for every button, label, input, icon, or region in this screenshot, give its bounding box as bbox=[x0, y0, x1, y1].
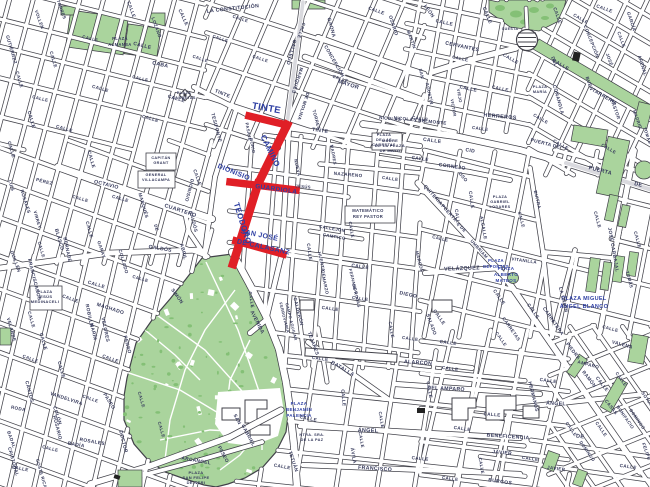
svg-text:NTRA. SRA.: NTRA. SRA. bbox=[299, 433, 324, 437]
svg-text:DE MAYO: DE MAYO bbox=[380, 148, 401, 153]
svg-text:ALMANSA: ALMANSA bbox=[108, 42, 131, 47]
svg-text:ÁNGEL: ÁNGEL bbox=[546, 400, 567, 408]
svg-text:MATEOS: MATEOS bbox=[495, 278, 516, 283]
svg-text:DE LA PAZ: DE LA PAZ bbox=[301, 438, 324, 442]
svg-text:BENJAMÍN: BENJAMÍN bbox=[286, 405, 312, 412]
svg-text:GRANT: GRANT bbox=[153, 161, 169, 165]
svg-text:REY PASTOR: REY PASTOR bbox=[353, 214, 383, 219]
svg-text:PLAZA: PLAZA bbox=[112, 36, 128, 41]
svg-text:MEDINACELI: MEDINACELI bbox=[31, 299, 59, 304]
svg-text:VILLACAMPA: VILLACAMPA bbox=[142, 178, 170, 182]
svg-text:PLAZA: PLAZA bbox=[177, 91, 191, 95]
svg-text:CUESTA: CUESTA bbox=[502, 27, 519, 31]
svg-text:PLAZA: PLAZA bbox=[533, 85, 547, 89]
svg-text:DEPORTES: DEPORTES bbox=[483, 264, 509, 269]
svg-text:PLAZA: PLAZA bbox=[493, 195, 507, 199]
svg-text:ALBERTO: ALBERTO bbox=[494, 272, 518, 277]
svg-text:DE LAS: DE LAS bbox=[376, 138, 392, 142]
svg-text:VELÁZQUEZ: VELÁZQUEZ bbox=[444, 264, 480, 272]
svg-text:CARRETAS: CARRETAS bbox=[372, 143, 396, 147]
svg-text:LODARES: LODARES bbox=[489, 205, 510, 209]
svg-text:DE NERI: DE NERI bbox=[187, 480, 206, 485]
svg-text:CAPITÁN: CAPITÁN bbox=[151, 155, 170, 160]
svg-text:GENERAL: GENERAL bbox=[145, 173, 166, 177]
svg-text:MARÍA: MARÍA bbox=[533, 89, 547, 94]
svg-text:PLAZA MIGUEL: PLAZA MIGUEL bbox=[561, 296, 607, 302]
svg-text:PLAZA: PLAZA bbox=[377, 133, 391, 137]
svg-text:PLAZA: PLAZA bbox=[488, 258, 504, 263]
svg-text:MATEMÁTICO: MATEMÁTICO bbox=[352, 208, 384, 213]
svg-text:PLAZA: PLAZA bbox=[291, 401, 308, 406]
svg-text:GABRIEL: GABRIEL bbox=[490, 200, 510, 204]
